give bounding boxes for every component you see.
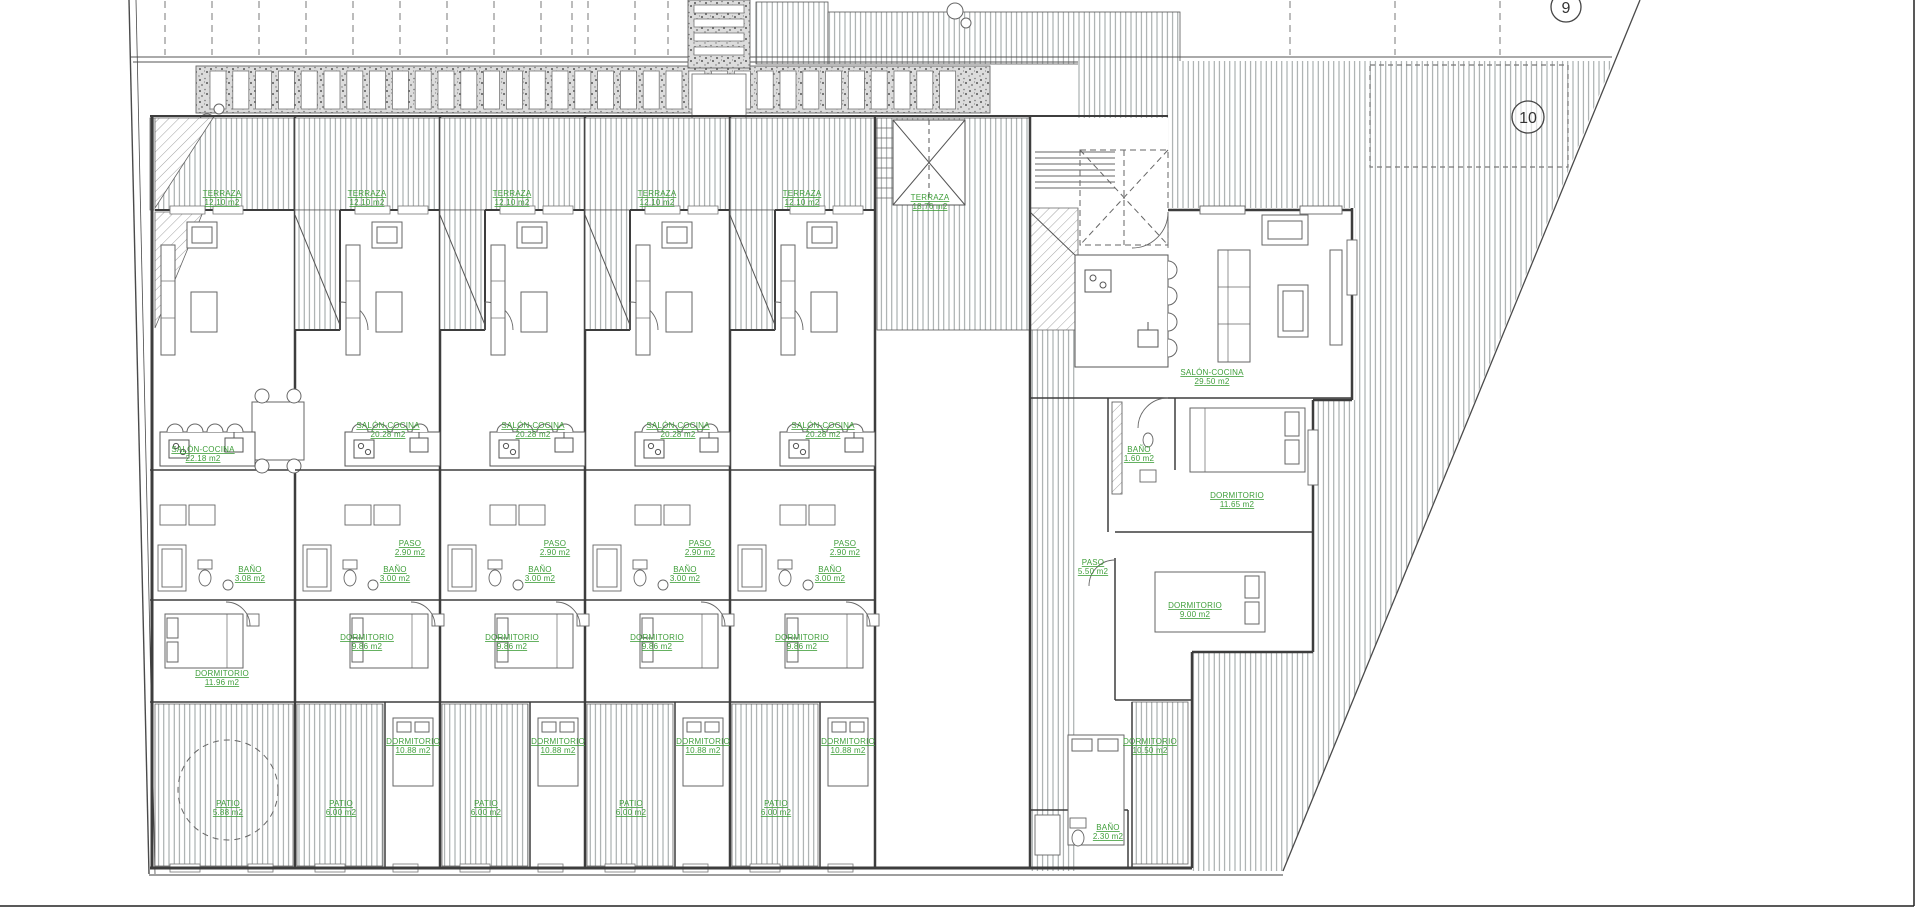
room-label: TERRAZA <box>911 193 950 202</box>
kitchen-stool <box>207 424 223 432</box>
room-area: 20.28 m2 <box>806 430 841 439</box>
corner-house-patio-hatch <box>1132 702 1188 864</box>
plot-marker-9: 9 <box>1551 0 1581 22</box>
room-area: 6.00 m2 <box>616 808 647 817</box>
room-area: 9.86 m2 <box>787 642 818 651</box>
sofa <box>1218 250 1250 362</box>
window <box>833 206 863 214</box>
bathroom-fixtures <box>738 545 813 591</box>
closet <box>809 505 835 525</box>
closet <box>664 505 690 525</box>
coffee-table <box>666 292 692 332</box>
armchair <box>807 222 837 248</box>
closet <box>780 505 806 525</box>
stepping-slab <box>894 71 910 109</box>
bed <box>1190 408 1305 472</box>
room-label: PATIO <box>329 799 353 808</box>
room-label: SALÓN-COCINA <box>501 421 565 430</box>
room-area: 2.90 m2 <box>685 548 716 557</box>
patio-hatch <box>587 704 673 866</box>
sofa <box>491 245 505 355</box>
room-label: BAÑO <box>528 565 551 574</box>
room-label: PASO <box>689 539 711 548</box>
upper-terrace-roof-hatch <box>756 2 1180 64</box>
sofa <box>636 245 650 355</box>
sofa <box>781 245 795 355</box>
room-label: TERRAZA <box>638 189 677 198</box>
patio-hatch <box>442 704 528 866</box>
room-area: 9.86 m2 <box>352 642 383 651</box>
room-label: TERRAZA <box>493 189 532 198</box>
room-area: 9.00 m2 <box>1180 610 1211 619</box>
stepping-slab <box>438 71 454 109</box>
room-label: BAÑO <box>238 565 261 574</box>
stepping-slab <box>552 71 568 109</box>
room-label: SALÓN-COCINA <box>356 421 420 430</box>
room-area: 12.10 m2 <box>785 198 820 207</box>
room-label: PASO <box>399 539 421 548</box>
room-label: DORMITORIO <box>340 633 394 642</box>
room-label: DORMITORIO <box>1210 491 1264 500</box>
room-area: 3.00 m2 <box>525 574 556 583</box>
plot-number: 10 <box>1519 110 1537 127</box>
stepping-slab <box>598 71 614 109</box>
window <box>398 206 428 214</box>
nightstand <box>577 614 589 626</box>
bathroom-fixtures <box>593 545 668 591</box>
room-area: 3.00 m2 <box>380 574 411 583</box>
armchair <box>1278 285 1308 337</box>
stepping-slab <box>620 71 636 109</box>
stepping-slab <box>461 71 477 109</box>
stepping-slab <box>233 71 249 109</box>
room-area: 2.90 m2 <box>830 548 861 557</box>
room-area: 11.65 m2 <box>1220 500 1255 509</box>
room-area: 2.90 m2 <box>540 548 571 557</box>
room-area: 10.88 m2 <box>686 746 721 755</box>
unit-4: TERRAZA 12.10 m2 SALÓN-COCINA 20.28 m2 P… <box>585 116 734 872</box>
armchair <box>372 222 402 248</box>
room-area: 9.86 m2 <box>642 642 673 651</box>
room-area: 6.00 m2 <box>326 808 357 817</box>
room-area: 3.08 m2 <box>235 574 266 583</box>
room-label: DORMITORIO <box>630 633 684 642</box>
coffee-table <box>521 292 547 332</box>
stepping-slab <box>278 71 294 109</box>
room-area: 6.00 m2 <box>471 808 502 817</box>
room-area: 10.88 m2 <box>831 746 866 755</box>
row-house-units: TERRAZA 12.10 m2 SALÓN-COCINA 22.18 m2 B… <box>150 116 879 872</box>
stepping-slab <box>347 71 363 109</box>
stepping-slab <box>803 71 819 109</box>
room-area: 22.18 m2 <box>186 454 221 463</box>
room-area: 10.88 m2 <box>396 746 431 755</box>
room-label: PATIO <box>474 799 498 808</box>
window <box>688 206 718 214</box>
room-label: TERRAZA <box>783 189 822 198</box>
room-label: DORMITORIO <box>676 737 730 746</box>
room-area: 12.10 m2 <box>495 198 530 207</box>
room-area: 10.88 m2 <box>541 746 576 755</box>
stepping-slab <box>871 71 887 109</box>
closet <box>189 505 215 525</box>
stepping-slab <box>529 71 545 109</box>
room-label: DORMITORIO <box>1123 737 1177 746</box>
coffee-table <box>376 292 402 332</box>
room-label: PATIO <box>764 799 788 808</box>
room-label: SALÓN-COCINA <box>791 421 855 430</box>
closet <box>519 505 545 525</box>
room-area: 20.28 m2 <box>371 430 406 439</box>
bed <box>165 614 243 668</box>
room-label: PASO <box>834 539 856 548</box>
room-label: PATIO <box>619 799 643 808</box>
armchair <box>187 222 217 248</box>
window <box>355 206 390 214</box>
room-label: PASO <box>544 539 566 548</box>
room-area: 9.86 m2 <box>497 642 528 651</box>
armchair <box>517 222 547 248</box>
room-label: DORMITORIO <box>775 633 829 642</box>
window <box>213 206 243 214</box>
window <box>645 206 680 214</box>
room-label: SALÓN-COCINA <box>1180 368 1244 377</box>
window <box>500 206 535 214</box>
coffee-table <box>191 292 217 332</box>
room-area: 5.88 m2 <box>213 808 244 817</box>
patio-hatch <box>732 704 818 866</box>
kitchen-island <box>1075 255 1168 367</box>
plot-marker-10: 10 <box>1512 101 1544 133</box>
room-area: 1.60 m2 <box>1124 454 1155 463</box>
bathroom-fixtures <box>448 545 523 591</box>
room-area: 20.28 m2 <box>516 430 551 439</box>
room-label: BAÑO <box>818 565 841 574</box>
unit-1: TERRAZA 12.10 m2 SALÓN-COCINA 22.18 m2 B… <box>150 116 304 872</box>
stepping-slab <box>210 71 226 109</box>
armchair <box>1262 215 1308 245</box>
coffee-table <box>811 292 837 332</box>
room-label: DORMITORIO <box>1168 601 1222 610</box>
room-label: TERRAZA <box>348 189 387 198</box>
stepping-slab <box>324 71 340 109</box>
unit-5: TERRAZA 12.10 m2 SALÓN-COCINA 20.28 m2 P… <box>730 116 879 872</box>
kitchen-stools <box>1168 261 1177 357</box>
dining-table <box>252 389 304 473</box>
room-area: 29.50 m2 <box>1195 377 1230 386</box>
plot-number: 9 <box>1562 0 1571 17</box>
stepping-slab <box>848 71 864 109</box>
closet <box>160 505 186 525</box>
room-area: 12.10 m2 <box>640 198 675 207</box>
kitchen-stool <box>167 424 183 432</box>
window <box>170 206 205 214</box>
nightstand <box>722 614 734 626</box>
sofa <box>161 245 175 355</box>
nightstand <box>867 614 879 626</box>
room-area: 2.30 m2 <box>1093 832 1124 841</box>
unit-2: TERRAZA 12.10 m2 SALÓN-COCINA 20.28 m2 P… <box>295 116 444 872</box>
room-label: DORMITORIO <box>821 737 875 746</box>
room-area: 3.00 m2 <box>670 574 701 583</box>
bathroom-fixtures <box>158 545 233 591</box>
room-area: 6.00 m2 <box>761 808 792 817</box>
room-label: BAÑO <box>1127 445 1150 454</box>
room-area: 18.76 m2 <box>913 202 948 211</box>
room-label: BAÑO <box>1096 823 1119 832</box>
stepping-slab <box>757 71 773 109</box>
stepping-slab <box>415 71 431 109</box>
stepping-slab <box>301 71 317 109</box>
room-area: 12.10 m2 <box>350 198 385 207</box>
room-area: 2.90 m2 <box>395 548 426 557</box>
stepping-slab <box>940 71 956 109</box>
room-area: 11.96 m2 <box>205 678 240 687</box>
closet <box>490 505 516 525</box>
room-label: TERRAZA <box>203 189 242 198</box>
stepping-slab <box>917 71 933 109</box>
entry-stair-lower-flight <box>1030 208 1078 330</box>
room-area: 3.00 m2 <box>815 574 846 583</box>
room-label: SALÓN-COCINA <box>646 421 710 430</box>
closet <box>345 505 371 525</box>
patio-hatch <box>297 704 383 866</box>
stepping-slab <box>575 71 591 109</box>
bathroom-fixtures <box>303 545 378 591</box>
stepping-slab <box>666 71 682 109</box>
closet <box>635 505 661 525</box>
closet <box>374 505 400 525</box>
window <box>543 206 573 214</box>
room-label: PASO <box>1082 558 1104 567</box>
stepping-slab <box>506 71 522 109</box>
stepping-slab <box>256 71 272 109</box>
room-label: DORMITORIO <box>195 669 249 678</box>
room-label: BAÑO <box>673 565 696 574</box>
room-label: SALÓN-COCINA <box>171 445 235 454</box>
stepping-slab <box>780 71 796 109</box>
armchair <box>662 222 692 248</box>
sofa <box>346 245 360 355</box>
room-area: 20.28 m2 <box>661 430 696 439</box>
room-label: DORMITORIO <box>531 737 585 746</box>
window <box>790 206 825 214</box>
kitchen-stool <box>227 424 243 432</box>
room-label: DORMITORIO <box>485 633 539 642</box>
floor-plan-canvas: TERRAZA 12.10 m2 SALÓN-COCINA 22.18 m2 B… <box>0 0 1920 920</box>
room-label: DORMITORIO <box>386 737 440 746</box>
sideboard <box>1330 250 1342 345</box>
patio-hatch <box>155 704 293 866</box>
site-plan-drawing: TERRAZA 12.10 m2 SALÓN-COCINA 22.18 m2 B… <box>0 0 1920 920</box>
nightstand <box>247 614 259 626</box>
entry-steps-strip <box>688 0 750 68</box>
kitchen-stool <box>187 424 203 432</box>
unit-3: TERRAZA 12.10 m2 SALÓN-COCINA 20.28 m2 P… <box>440 116 589 872</box>
stepping-slab <box>392 71 408 109</box>
stepping-slab <box>643 71 659 109</box>
nightstand <box>432 614 444 626</box>
room-area: 12.10 m2 <box>205 198 240 207</box>
stepping-slab <box>484 71 500 109</box>
room-label: BAÑO <box>383 565 406 574</box>
stepping-slab <box>826 71 842 109</box>
room-area: 10.50 m2 <box>1133 746 1168 755</box>
room-label: PATIO <box>216 799 240 808</box>
stepping-slab <box>370 71 386 109</box>
room-area: 5.50 m2 <box>1078 567 1109 576</box>
